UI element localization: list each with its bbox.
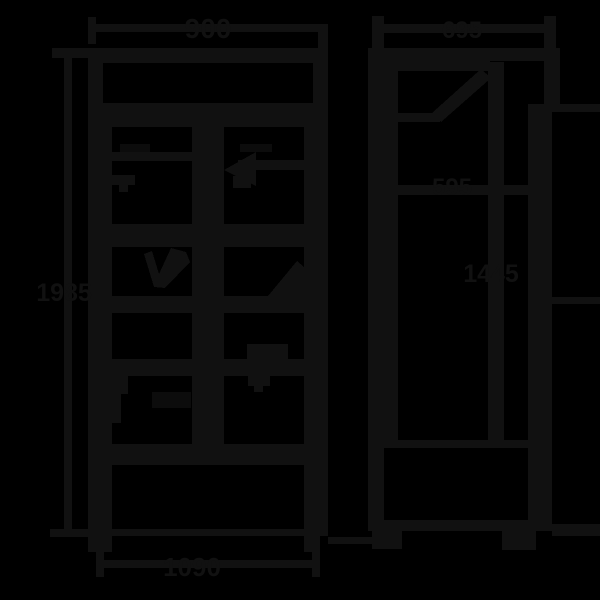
svg-text:1445: 1445	[463, 260, 519, 288]
svg-text:695: 695	[442, 17, 482, 44]
svg-text:595: 595	[432, 174, 472, 201]
svg-text:900: 900	[185, 13, 232, 44]
svg-text:1985: 1985	[36, 279, 92, 307]
svg-text:1090: 1090	[163, 552, 221, 582]
